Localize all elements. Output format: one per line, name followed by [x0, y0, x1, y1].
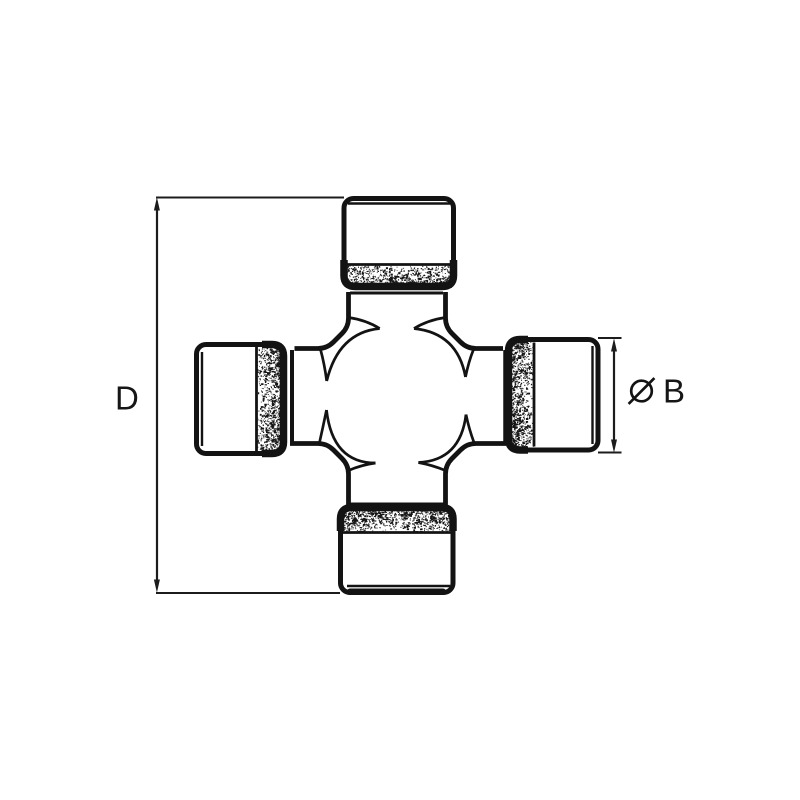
- svg-text:B: B: [663, 373, 685, 410]
- svg-text:D: D: [115, 380, 139, 417]
